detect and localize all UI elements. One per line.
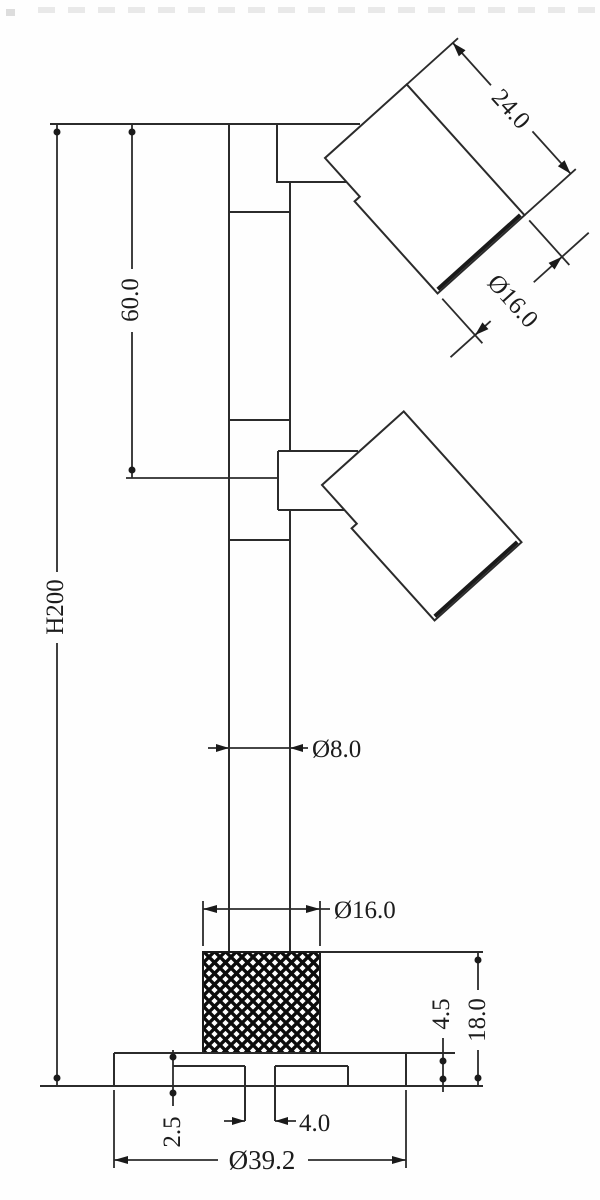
dim-label-head-length: 24.0 — [486, 84, 535, 135]
pole — [50, 124, 360, 952]
dim-dot — [475, 957, 482, 964]
spot-head-middle-outline — [317, 411, 522, 620]
dim-label-knurl-diameter: Ø16.0 — [334, 897, 396, 924]
dim-total-height: H200 — [42, 124, 69, 1086]
knurled-collar-body — [203, 952, 320, 1053]
spot-head-middle — [317, 411, 522, 620]
ext-line-lens-top — [529, 220, 569, 265]
arrowhead — [392, 1156, 406, 1164]
arrowhead — [114, 1156, 128, 1164]
ext-line-head-back — [407, 38, 458, 84]
arrowhead — [232, 1117, 245, 1125]
dim-label-base-height: 18.0 — [464, 998, 491, 1042]
ext-line-lens-bottom — [442, 299, 482, 344]
dim-base-height: 18.0 — [464, 952, 491, 1086]
dim-head-spacing: 60.0 — [117, 124, 278, 478]
dim-pole-diameter: Ø8.0 — [208, 736, 361, 763]
dim-label-head-spacing: 60.0 — [117, 278, 144, 322]
dim-dot — [54, 1075, 61, 1082]
spot-head-top-outline — [320, 84, 525, 293]
spotlight-technical-drawing: 24.0 Ø16.0 H200 60.0 Ø8.0 — [0, 0, 600, 1200]
dim-knurl-diameter: Ø16.0 — [203, 897, 396, 946]
dim-base-diameter: Ø39.2 — [114, 1090, 406, 1175]
dim-dot — [440, 1076, 447, 1083]
dim-dot — [54, 129, 61, 136]
spot-head-top: 24.0 Ø16.0 — [295, 35, 600, 380]
ext-line-head-front — [525, 169, 576, 215]
dim-label-recess-depth: 2.5 — [159, 1116, 186, 1147]
dim-label-center-hole: 4.0 — [299, 1110, 330, 1137]
dim-dot — [475, 1075, 482, 1082]
technical-drawing-page: 24.0 Ø16.0 H200 60.0 Ø8.0 — [0, 0, 600, 1200]
arrowhead — [203, 905, 217, 913]
arrowhead — [290, 744, 303, 752]
arrowhead — [275, 1117, 288, 1125]
arrowhead — [216, 744, 229, 752]
arrowhead — [306, 905, 320, 913]
dim-dot — [440, 1058, 447, 1065]
dim-label-base-diameter: Ø39.2 — [229, 1145, 296, 1175]
dim-label-pole-diameter: Ø8.0 — [312, 736, 361, 763]
dim-recess-depth: 2.5 — [159, 1050, 186, 1148]
dim-plate-thickness: 4.5 — [428, 998, 455, 1092]
dim-label-plate-thickness: 4.5 — [428, 998, 455, 1029]
dim-label-head-lens-diameter: Ø16.0 — [482, 269, 543, 333]
dim-dot — [170, 1090, 177, 1097]
dim-dot — [129, 129, 136, 136]
dim-dot — [170, 1054, 177, 1061]
dim-center-hole: 4.0 — [224, 1110, 330, 1137]
scan-artifact-strip — [6, 9, 596, 16]
dim-label-total-height: H200 — [42, 579, 69, 635]
dim-dot — [129, 467, 136, 474]
knurled-collar — [203, 952, 320, 1053]
